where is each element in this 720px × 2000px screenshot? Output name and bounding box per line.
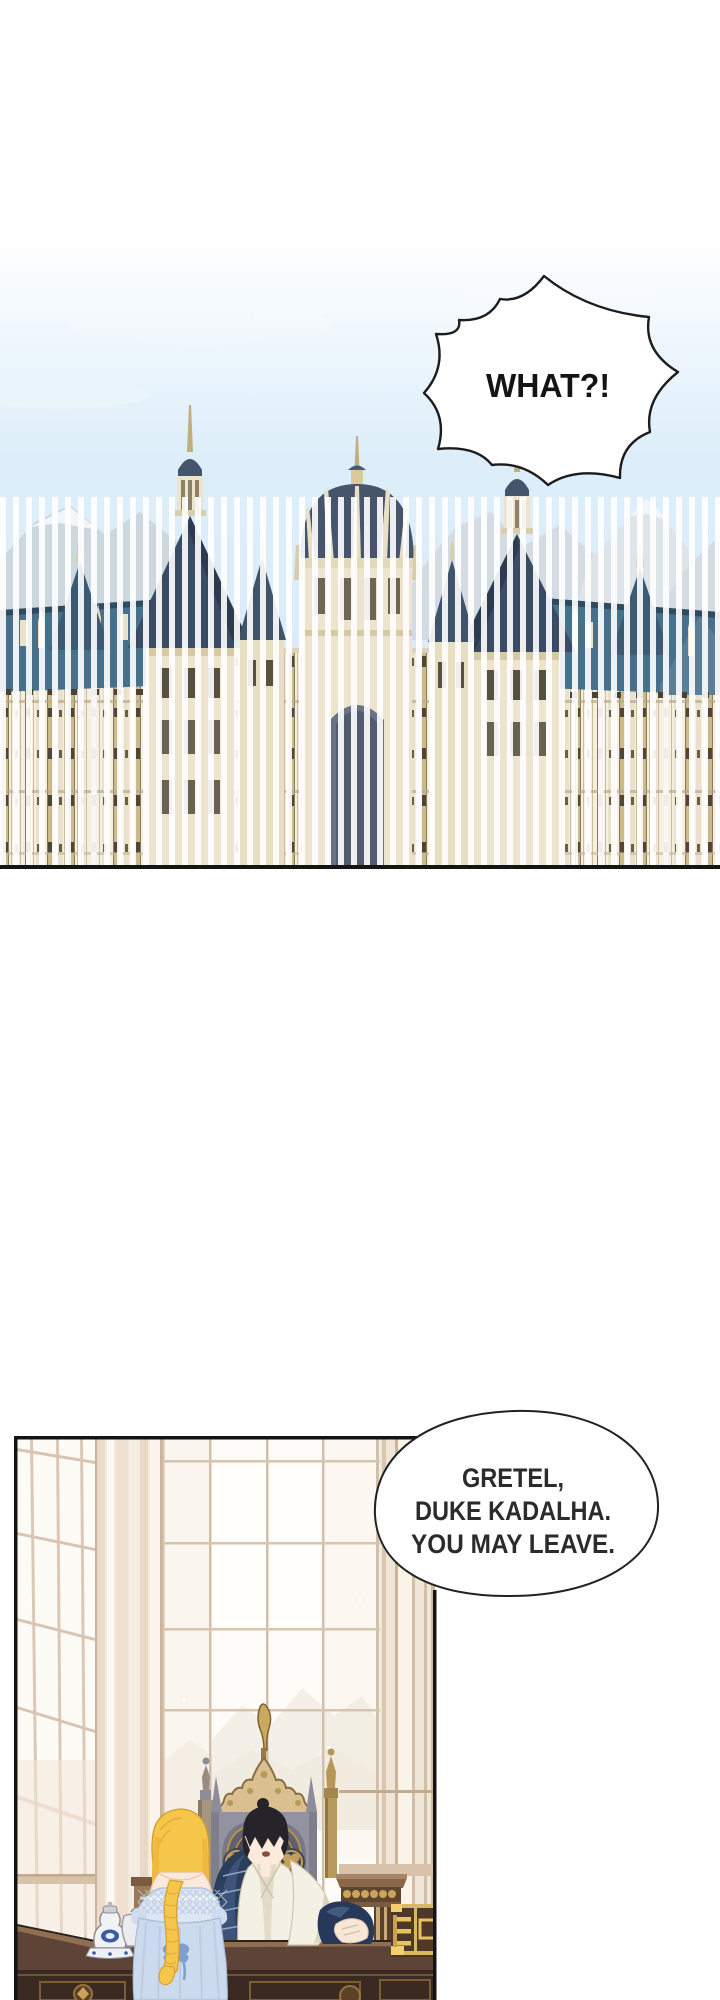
svg-text:YOU MAY LEAVE.: YOU MAY LEAVE. [411, 1529, 615, 1559]
svg-text:DUKE KADALHA.: DUKE KADALHA. [415, 1496, 611, 1526]
svg-text:GRETEL,: GRETEL, [462, 1463, 564, 1493]
svg-text:WHAT?!: WHAT?! [486, 367, 610, 404]
